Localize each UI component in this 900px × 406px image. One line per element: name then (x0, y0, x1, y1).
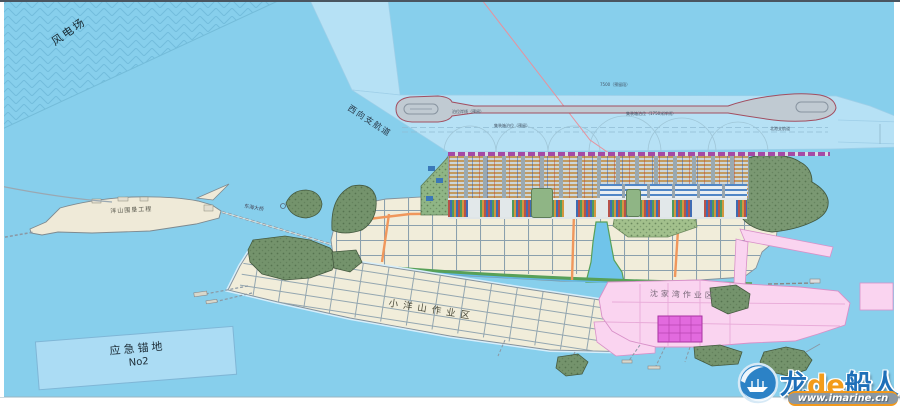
park-building (436, 178, 443, 183)
shenjiawan-label: 沈家湾作业区 (650, 288, 716, 301)
annotation-berth-reserved: 集装箱泊位（预留） (494, 123, 530, 129)
ship-logo-icon (734, 361, 784, 406)
annotation-quay-reserved: 泊位岸线（预留） (452, 109, 484, 115)
park-building (426, 196, 433, 201)
annotation-berth-line: 集装箱泊位（1750米岸线） (626, 111, 676, 117)
watermark-url[interactable]: www.imarine.cn (788, 391, 898, 406)
annotation-north-channel: 北港支航道 (770, 126, 790, 132)
container-freight-station (448, 198, 747, 219)
yard-green-median (626, 189, 641, 217)
pink-patch-east (860, 283, 893, 310)
watermark-logo[interactable] (734, 361, 784, 406)
annotation-reserved-segment: 7500（预留段） (600, 82, 630, 88)
park-building (428, 166, 435, 171)
container-yard-east-sheds (600, 184, 747, 198)
port-planning-map: 风电场 西向支航道 洋山围垦工程 东海大桥 应急锚地 No2 小洋山作业区 沈家… (0, 0, 900, 406)
yard-green-median (531, 188, 553, 218)
